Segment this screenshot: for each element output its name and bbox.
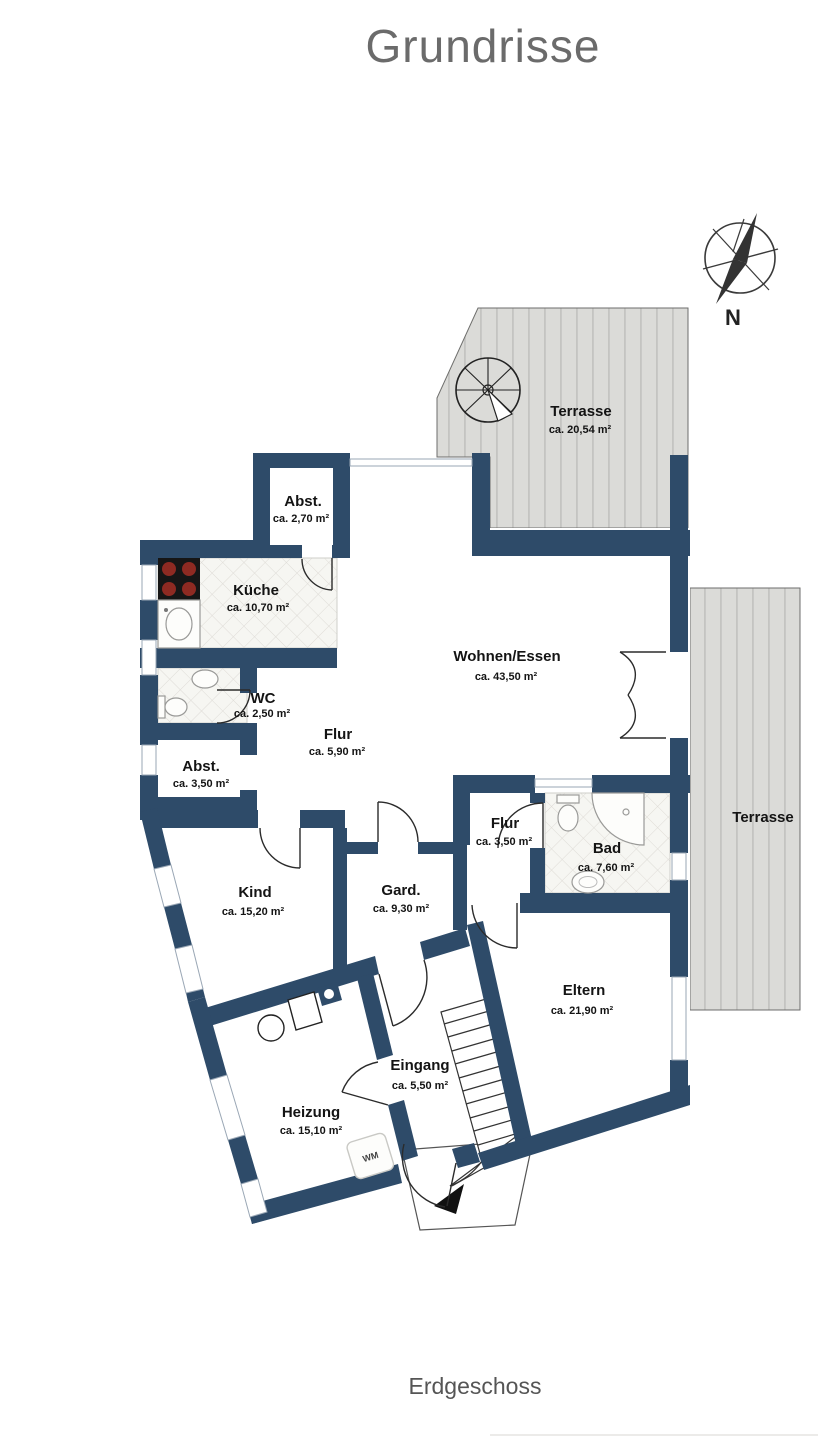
- svg-text:ca. 43,50 m²: ca. 43,50 m²: [475, 671, 538, 683]
- svg-text:Eltern: Eltern: [563, 982, 606, 999]
- svg-text:ca. 7,60 m²: ca. 7,60 m²: [578, 862, 635, 874]
- svg-text:ca. 10,70 m²: ca. 10,70 m²: [227, 602, 290, 614]
- svg-text:Bad: Bad: [593, 840, 621, 857]
- svg-text:Abst.: Abst.: [182, 758, 220, 775]
- svg-text:Eingang: Eingang: [390, 1057, 449, 1074]
- svg-text:ca. 3,50 m²: ca. 3,50 m²: [476, 836, 533, 848]
- kitchen-fixtures: [158, 558, 200, 648]
- page-title: Grundrisse: [366, 20, 601, 72]
- svg-text:Heizung: Heizung: [282, 1104, 340, 1121]
- svg-text:Abst.: Abst.: [284, 493, 322, 510]
- svg-text:ca. 5,90 m²: ca. 5,90 m²: [309, 746, 366, 758]
- room-label-heizung: Heizungca. 15,10 m²: [280, 1104, 343, 1137]
- compass-icon: N: [703, 213, 778, 330]
- floor-plan-svg: Grundrisse N: [0, 0, 818, 1440]
- svg-text:Flur: Flur: [491, 815, 519, 832]
- svg-text:Flur: Flur: [324, 726, 352, 743]
- compass-north-label: N: [725, 305, 741, 330]
- svg-text:Kind: Kind: [238, 884, 271, 901]
- page-edge-artifact: [490, 1434, 818, 1436]
- svg-text:Terrasse: Terrasse: [732, 809, 793, 826]
- svg-text:ca. 15,10 m²: ca. 15,10 m²: [280, 1125, 343, 1137]
- svg-text:ca. 9,30 m²: ca. 9,30 m²: [373, 903, 430, 915]
- svg-text:ca. 15,20 m²: ca. 15,20 m²: [222, 906, 285, 918]
- room-label-terrasse-seite: Terrasse: [732, 809, 793, 826]
- svg-text:ca. 2,70 m²: ca. 2,70 m²: [273, 513, 330, 525]
- floor-label: Erdgeschoss: [409, 1373, 542, 1399]
- svg-text:Gard.: Gard.: [381, 882, 420, 899]
- svg-text:ca. 3,50 m²: ca. 3,50 m²: [173, 778, 230, 790]
- terrace-right: [690, 588, 800, 1010]
- svg-text:Küche: Küche: [233, 582, 279, 599]
- svg-text:ca. 2,50 m²: ca. 2,50 m²: [234, 708, 291, 720]
- spiral-stairs-icon: [456, 358, 520, 422]
- svg-text:ca. 20,54 m²: ca. 20,54 m²: [549, 424, 612, 436]
- svg-text:Wohnen/Essen: Wohnen/Essen: [453, 648, 560, 665]
- svg-text:ca. 21,90 m²: ca. 21,90 m²: [551, 1005, 614, 1017]
- svg-text:ca. 5,50 m²: ca. 5,50 m²: [392, 1080, 449, 1092]
- room-label-terrasse-top: Terrasseca. 20,54 m²: [549, 403, 612, 436]
- svg-text:Terrasse: Terrasse: [550, 403, 611, 420]
- svg-text:WC: WC: [251, 690, 276, 707]
